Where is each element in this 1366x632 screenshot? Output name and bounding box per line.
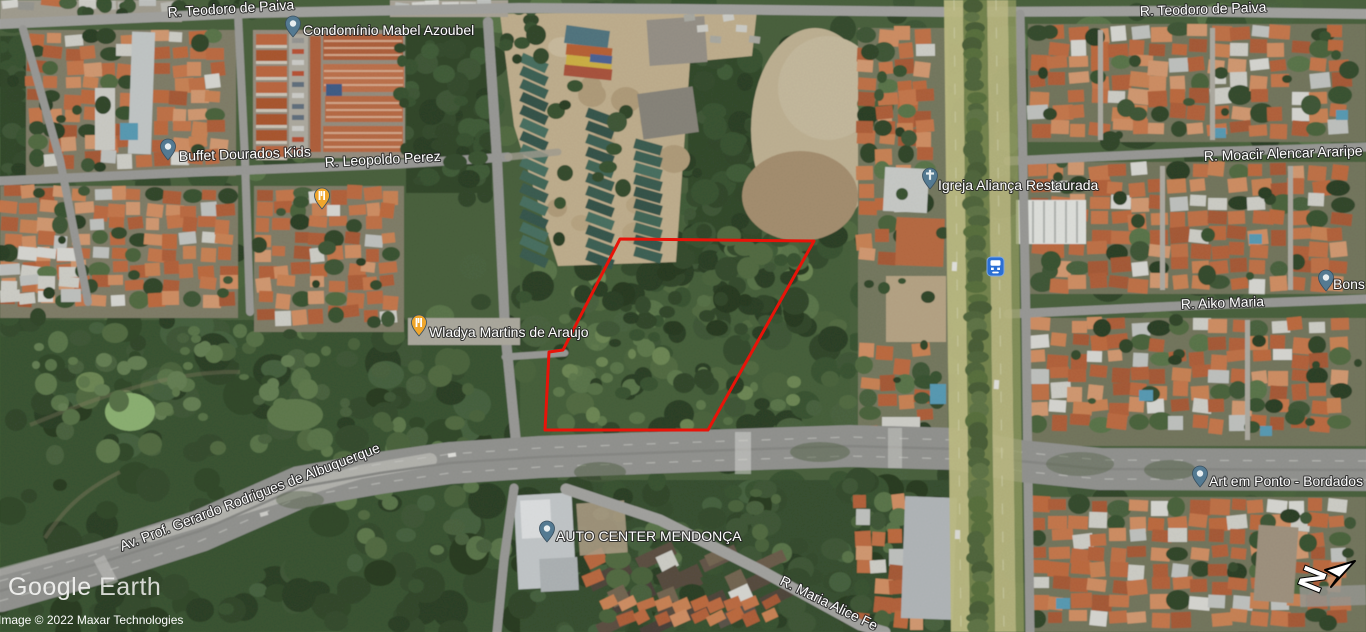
svg-text:Wladya Martins de Araujo: Wladya Martins de Araujo xyxy=(429,324,589,340)
svg-text:Igreja Aliança Restaurada: Igreja Aliança Restaurada xyxy=(938,177,1099,193)
svg-text:Condomínio Mabel Azoubel: Condomínio Mabel Azoubel xyxy=(303,22,474,38)
svg-text:Google Earth: Google Earth xyxy=(8,573,161,601)
svg-text:AUTO CENTER MENDONÇA: AUTO CENTER MENDONÇA xyxy=(556,528,742,544)
svg-text:Image © 2022 Maxar Technologie: Image © 2022 Maxar Technologies xyxy=(0,613,183,627)
svg-text:Art em Ponto - Bordados: Art em Ponto - Bordados xyxy=(1209,473,1363,489)
svg-text:Bons A: Bons A xyxy=(1333,276,1366,292)
svg-text:R. Aiko Maria: R. Aiko Maria xyxy=(1181,293,1265,312)
